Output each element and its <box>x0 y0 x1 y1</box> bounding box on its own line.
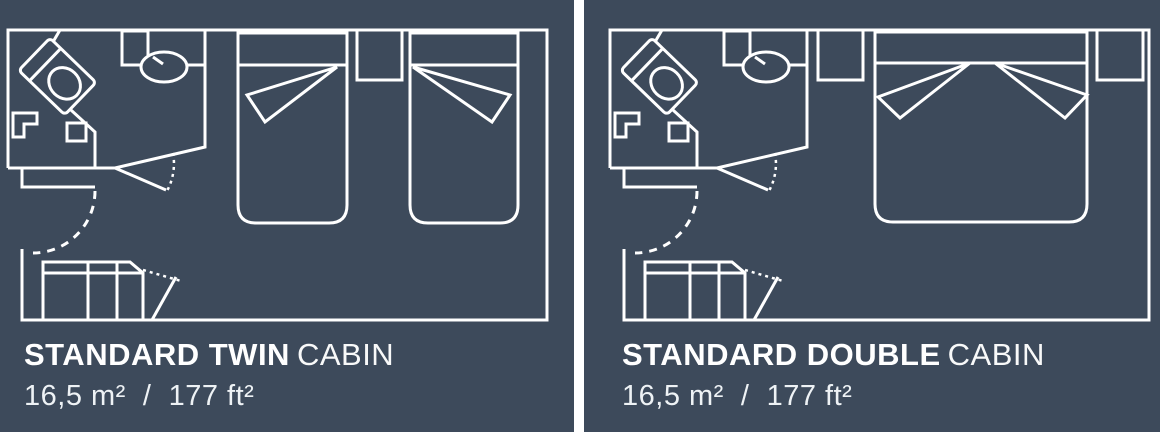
panel-standard-twin: STANDARD TWINCABIN 16,5 m² / 177 ft² <box>0 0 574 432</box>
cabin-title: STANDARD TWINCABIN <box>24 338 394 372</box>
blanket-fold <box>413 67 510 122</box>
twin-bed-left <box>238 33 347 223</box>
twin-beds <box>238 30 518 223</box>
blanket-fold <box>995 63 1087 118</box>
double-bed <box>875 32 1087 222</box>
cabin-title-name: STANDARD TWIN <box>24 337 290 372</box>
cabin-title-type: CABIN <box>297 337 394 372</box>
cabin-title-name: STANDARD DOUBLE <box>622 337 941 372</box>
nightstand-right <box>1097 30 1143 80</box>
cabin-title-type: CABIN <box>948 337 1045 372</box>
twin-bed-right <box>410 33 518 223</box>
blanket-fold <box>247 67 337 122</box>
cabin-area-label: 16,5 m² / 177 ft² <box>622 381 1045 413</box>
panel-standard-double: STANDARD DOUBLECABIN 16,5 m² / 177 ft² <box>584 0 1160 432</box>
blanket-fold <box>878 63 970 118</box>
cabin-comparison-board: STANDARD TWINCABIN 16,5 m² / 177 ft² ST <box>0 0 1160 432</box>
cabin-area-label: 16,5 m² / 177 ft² <box>24 381 394 413</box>
double-bed-group <box>818 30 1143 222</box>
caption-standard-twin: STANDARD TWINCABIN 16,5 m² / 177 ft² <box>24 338 394 413</box>
nightstand-left <box>818 30 863 80</box>
nightstand <box>357 30 402 80</box>
cabin-title: STANDARD DOUBLECABIN <box>622 338 1045 372</box>
caption-standard-double: STANDARD DOUBLECABIN 16,5 m² / 177 ft² <box>622 338 1045 413</box>
